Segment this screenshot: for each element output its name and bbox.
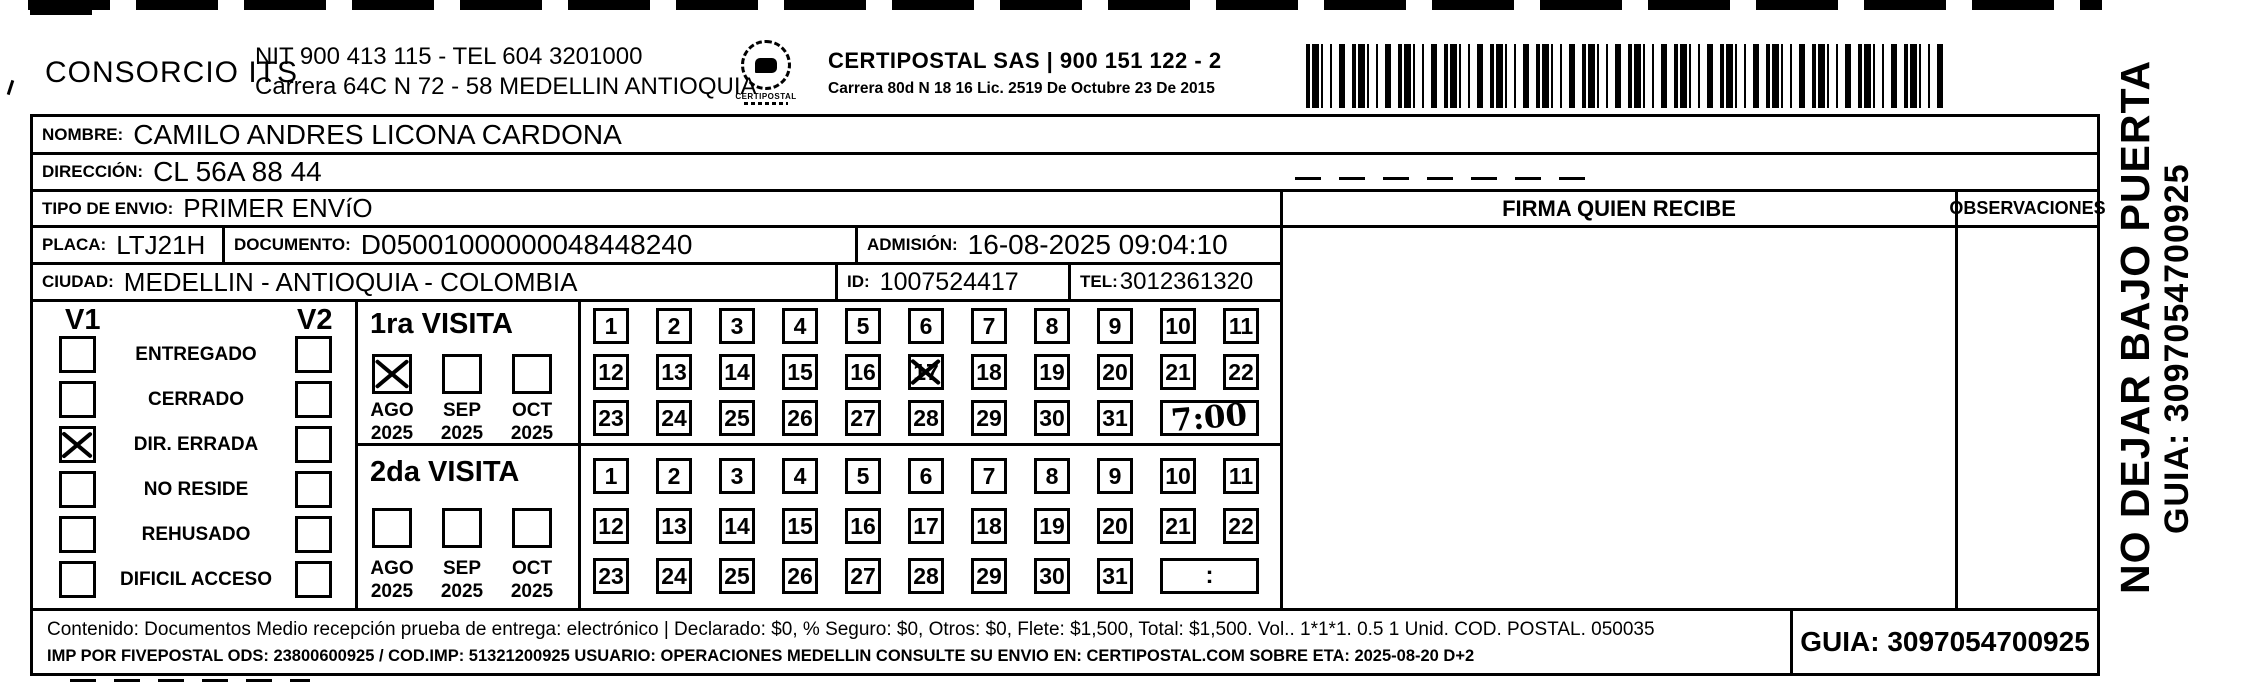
- visit2-month-box: 2da VISITAAGO2025SEP2025OCT2025: [355, 443, 581, 611]
- day-cell: 7: [971, 458, 1007, 494]
- status-checkbox-v1: [59, 561, 96, 598]
- admision-cell: ADMISIÓN: 16-08-2025 09:04:10: [855, 225, 1283, 265]
- month-year: 2025: [434, 581, 490, 603]
- status-label: DIFICIL ACCESO: [103, 569, 289, 591]
- day-cell: 9: [1097, 458, 1133, 494]
- company-address-line: Carrera 64C N 72 - 58 MEDELLIN ANTIOQUIA: [255, 72, 757, 102]
- delivery-form: NOMBRE: CAMILO ANDRES LICONA CARDONA DIR…: [30, 114, 2100, 676]
- admision-label: ADMISIÓN:: [867, 235, 958, 255]
- day-cell: 17: [908, 354, 944, 390]
- status-label: DIR. ERRADA: [103, 434, 289, 456]
- admision-value: 16-08-2025 09:04:10: [968, 229, 1228, 261]
- status-checkbox-v1: [59, 471, 96, 508]
- placa-label: PLACA:: [42, 235, 106, 255]
- id-label: ID:: [847, 272, 870, 292]
- day-cell: 6: [908, 458, 944, 494]
- day-cell: 16: [845, 354, 881, 390]
- tipo-envio-cell: TIPO DE ENVIO: PRIMER ENVíO: [30, 189, 1283, 228]
- status-checkbox-v1: [59, 516, 96, 553]
- day-cell: 4: [782, 308, 818, 344]
- day-cell: 17: [908, 508, 944, 544]
- status-label: CERRADO: [103, 389, 289, 411]
- day-cell: 31: [1097, 400, 1133, 436]
- day-cell: 27: [845, 558, 881, 594]
- status-checkbox-v2: [295, 336, 332, 373]
- status-checkbox-v2: [295, 471, 332, 508]
- certipostal-logo-icon: [741, 40, 791, 90]
- firma-header-label: FIRMA QUIEN RECIBE: [1502, 196, 1736, 222]
- day-cell: 22: [1223, 354, 1259, 390]
- day-cell: 10: [1160, 308, 1196, 344]
- status-label: NO RESIDE: [103, 479, 289, 501]
- day-cell: 5: [845, 458, 881, 494]
- day-cell: 6: [908, 308, 944, 344]
- month-label: SEP: [434, 558, 490, 580]
- day-cell: 18: [971, 354, 1007, 390]
- month-label: OCT: [504, 558, 560, 580]
- status-box: V1 V2 ENTREGADOCERRADODIR. ERRADANO RESI…: [30, 299, 358, 611]
- day-cell: 1: [593, 308, 629, 344]
- scan-artifact-top-dashes: [28, 0, 2102, 10]
- company-nit-line: NIT 900 413 115 - TEL 604 3201000: [255, 42, 757, 72]
- nombre-value: CAMILO ANDRES LICONA CARDONA: [133, 119, 622, 151]
- month-label: OCT: [504, 400, 560, 422]
- day-cell: 3: [719, 458, 755, 494]
- observaciones-area: [1955, 225, 2100, 611]
- visit-title: 1ra VISITA: [370, 308, 513, 341]
- certipostal-company-line: CERTIPOSTAL SAS | 900 151 122 - 2: [828, 48, 1222, 74]
- day-cell: 2: [656, 458, 692, 494]
- ciudad-cell: CIUDAD: MEDELLIN - ANTIOQUIA - COLOMBIA: [30, 262, 838, 302]
- day-cell: 8: [1034, 308, 1070, 344]
- firma-signature-area: [1280, 225, 1958, 611]
- day-cell: 27: [845, 400, 881, 436]
- documento-cell: DOCUMENTO: D05001000000048448240: [222, 225, 858, 265]
- visit-title: 2da VISITA: [370, 456, 519, 489]
- month-checkbox-oct: [512, 354, 552, 394]
- imp-line: IMP POR FIVEPOSTAL ODS: 23800600925 / CO…: [47, 647, 1474, 666]
- placa-cell: PLACA: LTJ21H: [30, 225, 225, 265]
- month-label: AGO: [364, 400, 420, 422]
- day-cell: 29: [971, 400, 1007, 436]
- month-year: 2025: [364, 423, 420, 445]
- tel-cell: TEL: 3012361320: [1068, 262, 1283, 302]
- status-checkbox-v1: [59, 381, 96, 418]
- day-cell: 28: [908, 400, 944, 436]
- documento-value: D05001000000048448240: [361, 229, 693, 261]
- visit-time-box: 7:00: [1160, 400, 1259, 436]
- month-checkbox-ago: [372, 354, 412, 394]
- status-checkbox-v2: [295, 561, 332, 598]
- month-year: 2025: [504, 581, 560, 603]
- month-label: AGO: [364, 558, 420, 580]
- month-checkbox-oct: [512, 508, 552, 548]
- day-cell: 28: [908, 558, 944, 594]
- day-cell: 21: [1160, 508, 1196, 544]
- direccion-value: CL 56A 88 44: [153, 156, 322, 188]
- day-cell: 14: [719, 354, 755, 390]
- day-cell: 12: [593, 354, 629, 390]
- ciudad-label: CIUDAD:: [42, 272, 114, 292]
- observaciones-header-cell: OBSERVACIONES: [1955, 189, 2100, 228]
- day-cell: 20: [1097, 354, 1133, 390]
- day-cell: 15: [782, 354, 818, 390]
- barcode: [1306, 44, 1950, 108]
- guia-number: GUIA: 3097054700925: [1800, 626, 2090, 658]
- firma-header-cell: FIRMA QUIEN RECIBE: [1280, 189, 1958, 228]
- month-year: 2025: [364, 581, 420, 603]
- day-cell: 24: [656, 400, 692, 436]
- scan-artifact: [1295, 177, 1585, 180]
- status-checkbox-v1: [59, 426, 96, 463]
- guia-number-box: GUIA: 3097054700925: [1790, 608, 2100, 676]
- month-checkbox-sep: [442, 508, 482, 548]
- scan-artifact-left-tick: [7, 80, 14, 95]
- day-cell: 13: [656, 508, 692, 544]
- status-checkbox-v2: [295, 516, 332, 553]
- status-checkbox-v2: [295, 381, 332, 418]
- day-cell: 20: [1097, 508, 1133, 544]
- day-cell: 29: [971, 558, 1007, 594]
- footer-info-box: Contenido: Documentos Medio recepción pr…: [30, 608, 1793, 676]
- company-contact-block: NIT 900 413 115 - TEL 604 3201000 Carrer…: [255, 42, 757, 102]
- month-year: 2025: [434, 423, 490, 445]
- day-cell: 11: [1223, 458, 1259, 494]
- day-cell: 23: [593, 400, 629, 436]
- day-cell: 12: [593, 508, 629, 544]
- day-cell: 18: [971, 508, 1007, 544]
- v1-header: V1: [65, 304, 100, 337]
- day-cell: 31: [1097, 558, 1133, 594]
- scan-artifact: [70, 679, 310, 682]
- tel-label: TEL:: [1080, 272, 1118, 292]
- day-cell: 24: [656, 558, 692, 594]
- logo-tagline-illegible: [744, 102, 788, 105]
- day-cell: 30: [1034, 558, 1070, 594]
- visit1-day-grid: 1234567891011121314151617181920212223242…: [578, 299, 1283, 446]
- day-cell: 26: [782, 558, 818, 594]
- day-cell: 15: [782, 508, 818, 544]
- day-cell: 1: [593, 458, 629, 494]
- day-cell: 4: [782, 458, 818, 494]
- tipo-envio-label: TIPO DE ENVIO:: [42, 199, 173, 219]
- no-dejar-bajo-puerta-label: NO DEJAR BAJO PUERTA: [2112, 60, 2159, 594]
- direccion-row: DIRECCIÓN: CL 56A 88 44: [30, 152, 2100, 192]
- visit-time-box: :: [1160, 558, 1259, 594]
- visit-time-value: :: [1206, 562, 1214, 590]
- scan-artifact: [1080, 189, 1460, 192]
- day-cell: 13: [656, 354, 692, 390]
- certipostal-logo-text: CERTIPOSTAL: [716, 92, 816, 101]
- id-value: 1007524417: [880, 268, 1019, 297]
- placa-value: LTJ21H: [116, 230, 205, 261]
- scan-artifact-ink-block: [30, 0, 92, 15]
- day-cell: 11: [1223, 308, 1259, 344]
- day-cell: 16: [845, 508, 881, 544]
- nombre-label: NOMBRE:: [42, 125, 123, 145]
- speech-bubble-icon: [755, 58, 777, 73]
- visit2-day-grid: 1234567891011121314151617181920212223242…: [578, 443, 1283, 611]
- day-cell: 21: [1160, 354, 1196, 390]
- day-cell: 7: [971, 308, 1007, 344]
- day-cell: 23: [593, 558, 629, 594]
- side-guia-label: GUIA: 3097054700925: [2158, 163, 2197, 534]
- day-cell: 5: [845, 308, 881, 344]
- status-label: ENTREGADO: [103, 344, 289, 366]
- direccion-label: DIRECCIÓN:: [42, 162, 143, 182]
- month-label: SEP: [434, 400, 490, 422]
- certipostal-logo: CERTIPOSTAL: [716, 40, 816, 105]
- visit-time-value: 7:00: [1170, 397, 1249, 440]
- status-checkbox-v2: [295, 426, 332, 463]
- month-year: 2025: [504, 423, 560, 445]
- day-cell: 3: [719, 308, 755, 344]
- month-checkbox-sep: [442, 354, 482, 394]
- day-cell: 8: [1034, 458, 1070, 494]
- documento-label: DOCUMENTO:: [234, 235, 351, 255]
- nombre-row: NOMBRE: CAMILO ANDRES LICONA CARDONA: [30, 114, 2100, 155]
- day-cell: 2: [656, 308, 692, 344]
- id-cell: ID: 1007524417: [835, 262, 1071, 302]
- certipostal-address-line: Carrera 80d N 18 16 Lic. 2519 De Octubre…: [828, 80, 1215, 98]
- v2-header: V2: [297, 304, 332, 337]
- month-checkbox-ago: [372, 508, 412, 548]
- tipo-envio-value: PRIMER ENVíO: [183, 193, 372, 224]
- day-cell: 25: [719, 400, 755, 436]
- day-cell: 19: [1034, 354, 1070, 390]
- status-label: REHUSADO: [103, 524, 289, 546]
- day-cell: 14: [719, 508, 755, 544]
- day-cell: 22: [1223, 508, 1259, 544]
- observaciones-header-label: OBSERVACIONES: [1949, 198, 2105, 219]
- contenido-line: Contenido: Documentos Medio recepción pr…: [47, 619, 1655, 641]
- day-cell: 10: [1160, 458, 1196, 494]
- visit1-month-box: 1ra VISITAAGO2025SEP2025OCT2025: [355, 299, 581, 446]
- day-cell: 30: [1034, 400, 1070, 436]
- day-cell: 25: [719, 558, 755, 594]
- day-cell: 9: [1097, 308, 1133, 344]
- status-checkbox-v1: [59, 336, 96, 373]
- tel-value: 3012361320: [1120, 268, 1253, 296]
- day-cell: 19: [1034, 508, 1070, 544]
- ciudad-value: MEDELLIN - ANTIOQUIA - COLOMBIA: [124, 267, 578, 298]
- day-cell: 26: [782, 400, 818, 436]
